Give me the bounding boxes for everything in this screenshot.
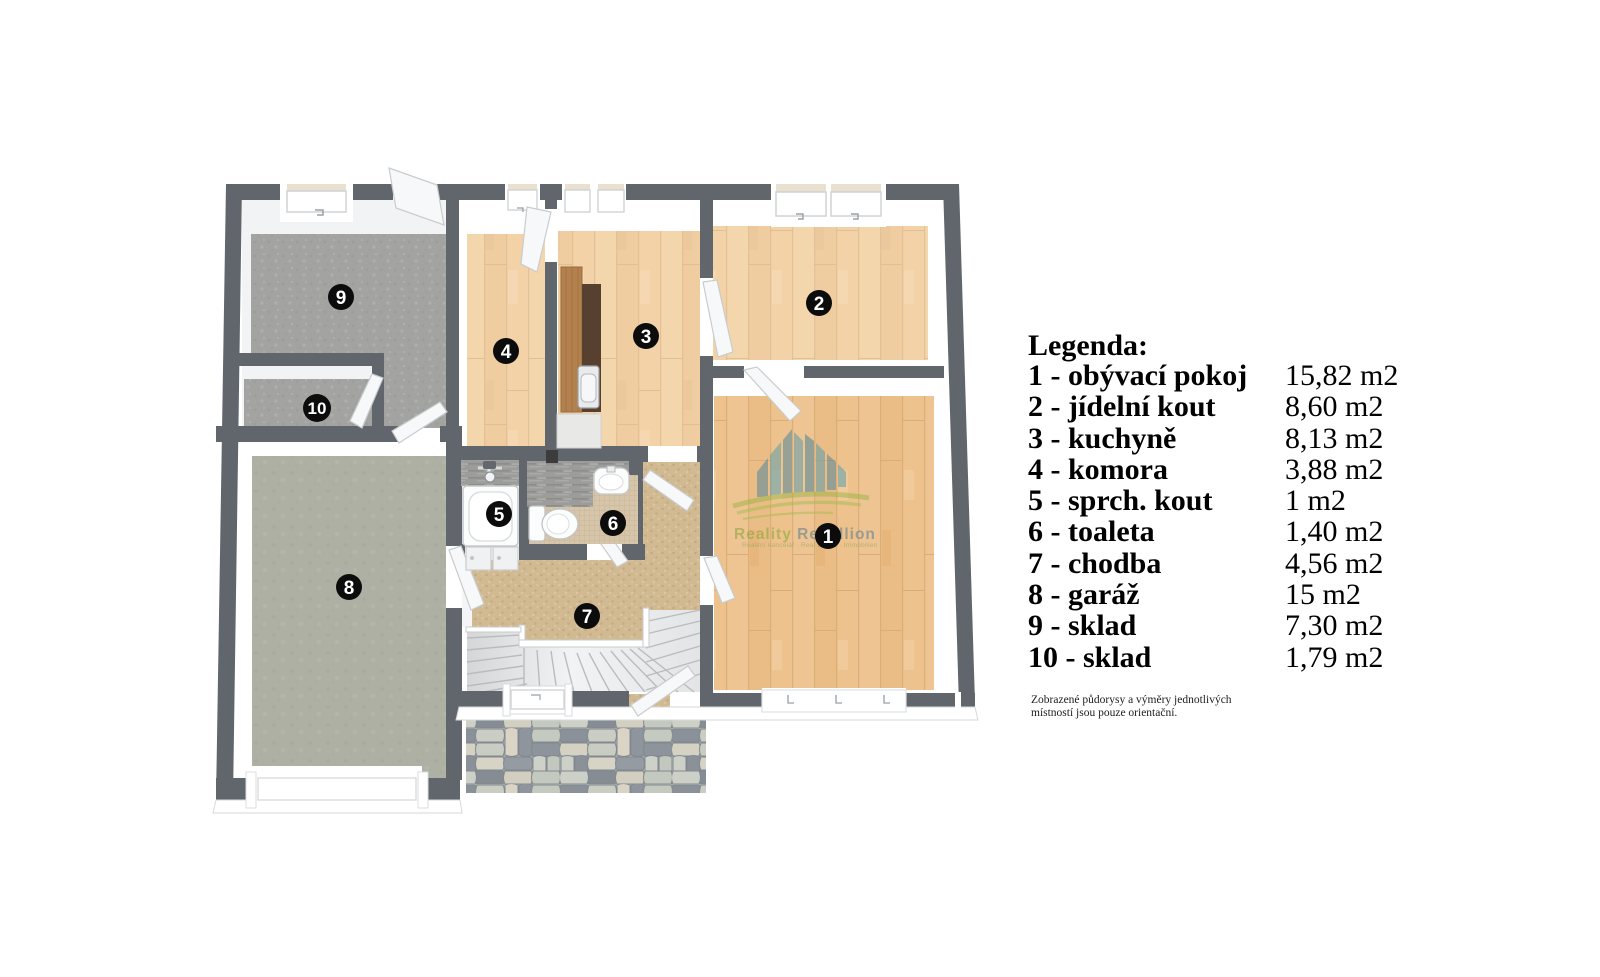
svg-text:9: 9: [336, 288, 347, 309]
svg-text:4: 4: [501, 342, 512, 363]
svg-text:8: 8: [344, 578, 355, 599]
svg-text:5: 5: [494, 505, 505, 526]
svg-text:6: 6: [608, 514, 619, 535]
svg-text:1: 1: [823, 527, 834, 548]
svg-text:Realitní kancelář · Real Estat: Realitní kancelář · Real Estate · Immobi…: [742, 542, 878, 549]
svg-text:Reality Rebellion: Reality Rebellion: [734, 526, 876, 543]
svg-text:3: 3: [641, 327, 652, 348]
svg-text:7: 7: [582, 607, 593, 628]
svg-text:2: 2: [814, 294, 825, 315]
svg-text:10: 10: [308, 399, 327, 418]
